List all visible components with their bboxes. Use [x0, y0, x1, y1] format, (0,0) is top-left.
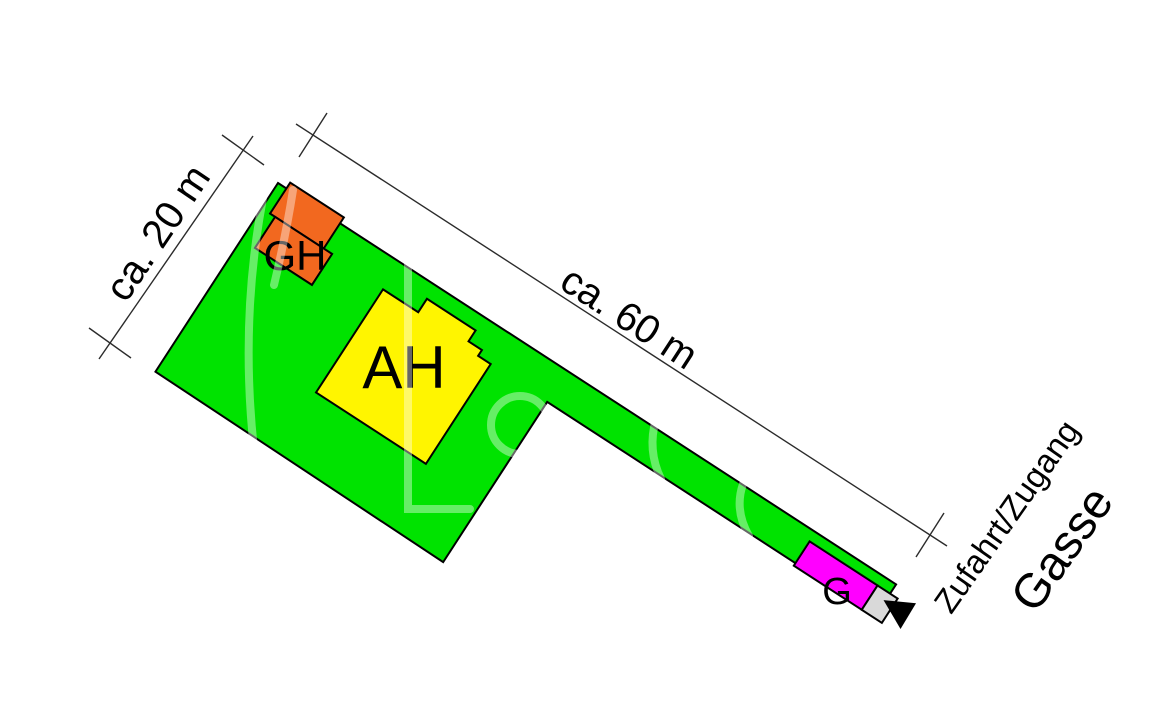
dimension-60m-tick-start — [299, 113, 327, 157]
dimension-20m-tick-start — [222, 135, 264, 165]
dimension-60m-tick-end — [916, 513, 944, 557]
dimension-20m-tick-end — [89, 328, 131, 358]
dimension-20m-label: ca. 20 m — [97, 157, 219, 309]
garden-house-label: GH — [264, 232, 327, 279]
garage-label: G — [822, 571, 852, 613]
site-plan-svg: AH GH G ca. 60 m ca. 20 m Zufahrt/Zugang… — [0, 0, 1169, 722]
dimension-60m-label: ca. 60 m — [553, 258, 706, 378]
street-labels: Zufahrt/Zugang Gasse — [927, 413, 1124, 621]
site-plan-canvas: AH GH G ca. 60 m ca. 20 m Zufahrt/Zugang… — [0, 0, 1169, 722]
